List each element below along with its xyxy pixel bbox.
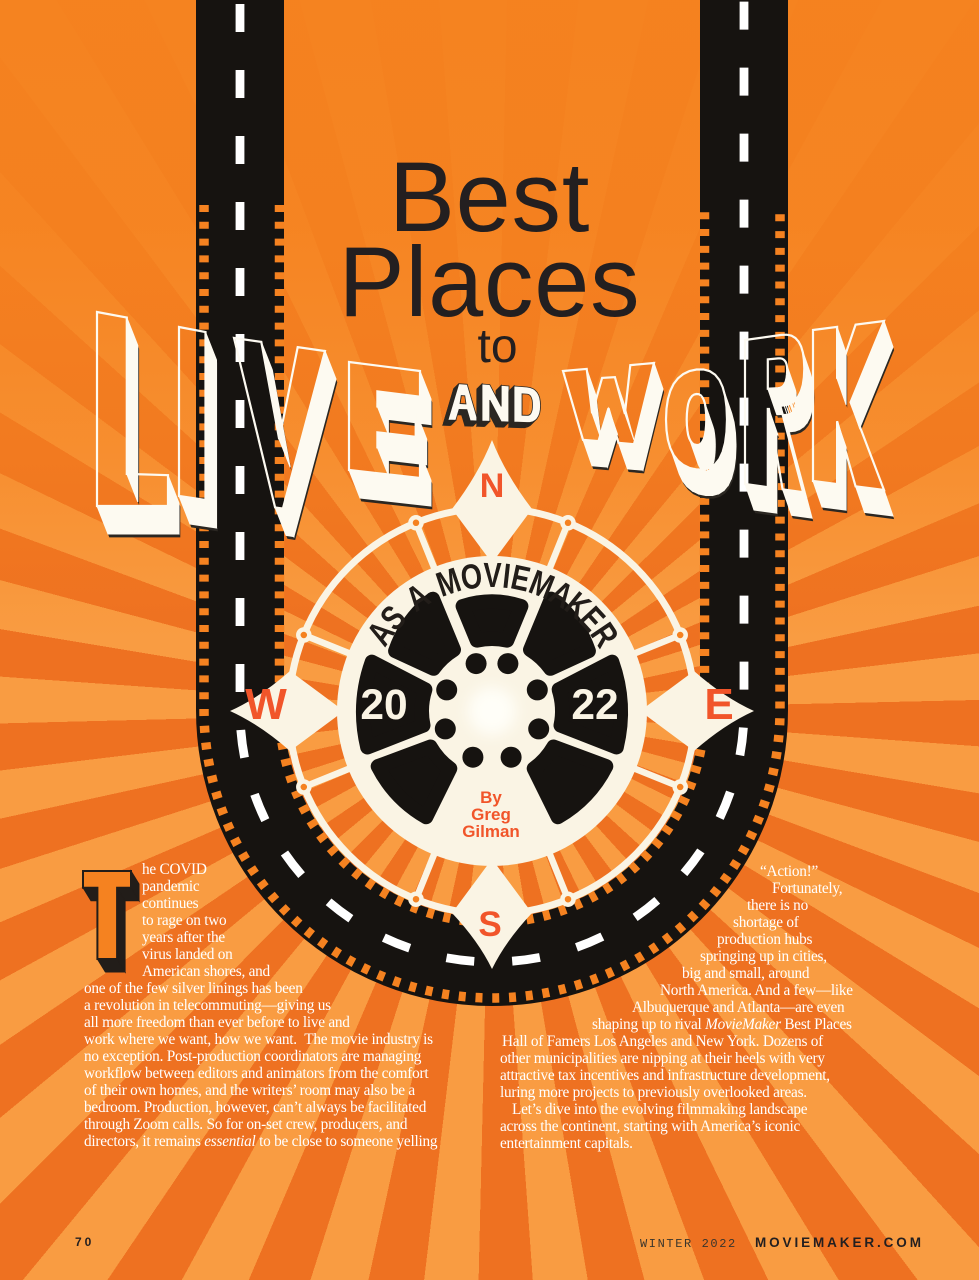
svg-text:22: 22 (571, 682, 618, 729)
svg-text:E: E (704, 680, 733, 729)
svg-text:N: N (480, 467, 505, 505)
svg-text:20: 20 (360, 682, 407, 729)
svg-text:V: V (483, 556, 501, 595)
svg-text:W: W (245, 680, 287, 729)
svg-text:Gilman: Gilman (462, 822, 520, 841)
svg-text:S: S (478, 905, 501, 944)
